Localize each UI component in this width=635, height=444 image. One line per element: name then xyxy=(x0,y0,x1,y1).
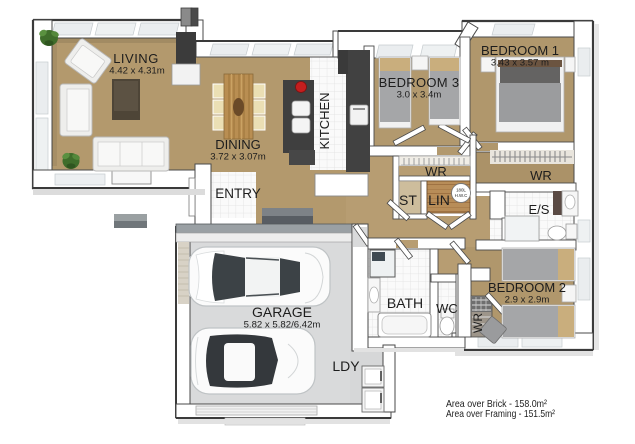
svg-text:H.W.C: H.W.C xyxy=(455,193,468,198)
svg-text:3.43 x 3.57 m: 3.43 x 3.57 m xyxy=(491,58,549,69)
svg-text:3.72 x 3.07m: 3.72 x 3.07m xyxy=(210,152,265,163)
svg-text:WR: WR xyxy=(530,168,552,183)
svg-text:BEDROOM 2: BEDROOM 2 xyxy=(488,280,566,295)
svg-text:180L: 180L xyxy=(456,188,466,193)
svg-text:3.0 x 3.4m: 3.0 x 3.4m xyxy=(397,90,442,101)
svg-text:WR: WR xyxy=(471,313,485,333)
svg-text:2.9 x 2.9m: 2.9 x 2.9m xyxy=(505,295,550,306)
svg-text:LDY: LDY xyxy=(332,358,360,374)
svg-text:Area over Framing - 151.5m²: Area over Framing - 151.5m² xyxy=(446,408,555,420)
svg-text:WC: WC xyxy=(436,301,458,316)
svg-text:ST: ST xyxy=(399,192,417,208)
svg-text:BATH: BATH xyxy=(387,295,423,311)
svg-text:WR: WR xyxy=(425,164,447,179)
svg-text:5.82 x 5.82/6.42m: 5.82 x 5.82/6.42m xyxy=(244,320,321,331)
svg-text:LIN: LIN xyxy=(428,192,450,208)
svg-text:GARAGE: GARAGE xyxy=(252,304,312,320)
svg-text:ENTRY: ENTRY xyxy=(215,186,261,201)
svg-text:BEDROOM 3: BEDROOM 3 xyxy=(379,75,460,90)
svg-text:KITCHEN: KITCHEN xyxy=(317,92,332,149)
svg-text:E/S: E/S xyxy=(529,202,550,217)
svg-text:BEDROOM 1: BEDROOM 1 xyxy=(481,43,559,58)
svg-text:4.42 x 4.31m: 4.42 x 4.31m xyxy=(109,66,164,77)
svg-text:LIVING: LIVING xyxy=(113,51,159,66)
svg-text:DINING: DINING xyxy=(215,137,261,152)
